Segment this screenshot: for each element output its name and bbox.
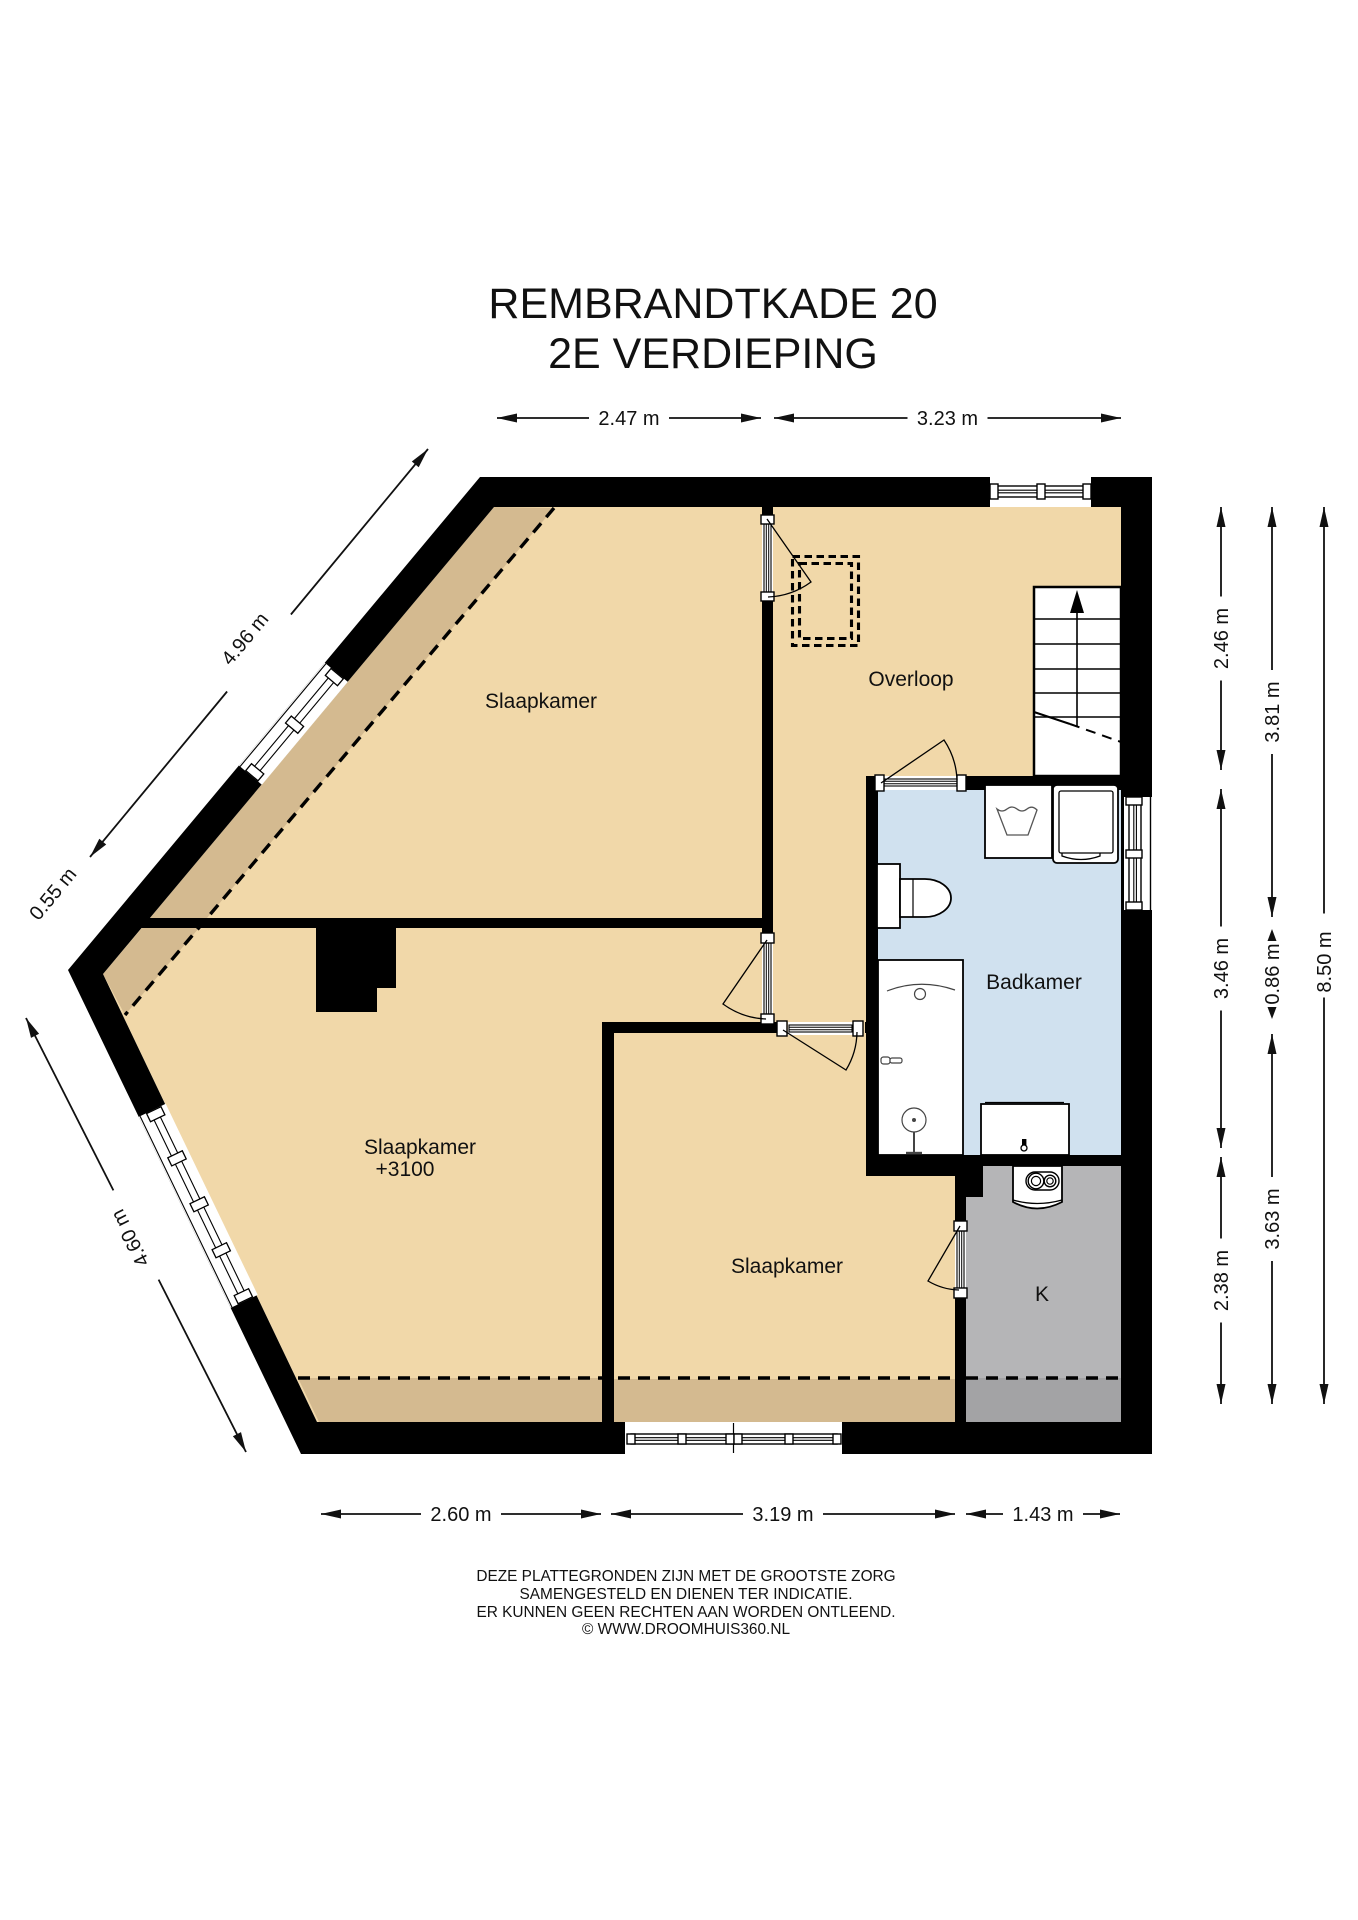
svg-text:3.23 m: 3.23 m — [917, 408, 978, 430]
svg-text:2E VERDIEPING: 2E VERDIEPING — [548, 330, 878, 378]
svg-text:2.47 m: 2.47 m — [598, 408, 659, 430]
svg-text:+3100: +3100 — [376, 1158, 435, 1181]
svg-text:2.60 m: 2.60 m — [430, 1504, 491, 1526]
svg-text:3.81 m: 3.81 m — [1262, 681, 1284, 742]
svg-text:Badkamer: Badkamer — [986, 971, 1082, 994]
svg-text:4.96 m: 4.96 m — [217, 609, 273, 670]
svg-text:4.60 m: 4.60 m — [107, 1205, 154, 1269]
svg-text:Overloop: Overloop — [868, 668, 953, 691]
svg-text:3.63 m: 3.63 m — [1262, 1188, 1284, 1249]
svg-text:2.46 m: 2.46 m — [1211, 608, 1233, 669]
svg-text:3.46 m: 3.46 m — [1211, 938, 1233, 999]
svg-text:2.38 m: 2.38 m — [1211, 1250, 1233, 1311]
svg-text:Slaapkamer: Slaapkamer — [364, 1136, 476, 1159]
svg-text:ER KUNNEN GEEN RECHTEN AAN WOR: ER KUNNEN GEEN RECHTEN AAN WORDEN ONTLEE… — [476, 1604, 895, 1621]
svg-text:© WWW.DROOMHUIS360.NL: © WWW.DROOMHUIS360.NL — [582, 1621, 790, 1638]
svg-text:Slaapkamer: Slaapkamer — [485, 690, 597, 713]
svg-text:1.43 m: 1.43 m — [1012, 1504, 1073, 1526]
svg-text:SAMENGESTELD EN DIENEN TER IND: SAMENGESTELD EN DIENEN TER INDICATIE. — [520, 1586, 853, 1603]
svg-text:0.55 m: 0.55 m — [25, 864, 81, 925]
svg-text:Slaapkamer: Slaapkamer — [731, 1255, 843, 1278]
svg-text:DEZE PLATTEGRONDEN ZIJN MET DE: DEZE PLATTEGRONDEN ZIJN MET DE GROOTSTE … — [476, 1568, 895, 1585]
svg-text:3.19 m: 3.19 m — [752, 1504, 813, 1526]
svg-text:8.50 m: 8.50 m — [1314, 931, 1336, 992]
svg-text:REMBRANDTKADE 20: REMBRANDTKADE 20 — [488, 280, 937, 328]
svg-text:K: K — [1035, 1283, 1049, 1306]
svg-text:0.86 m: 0.86 m — [1262, 943, 1284, 1004]
